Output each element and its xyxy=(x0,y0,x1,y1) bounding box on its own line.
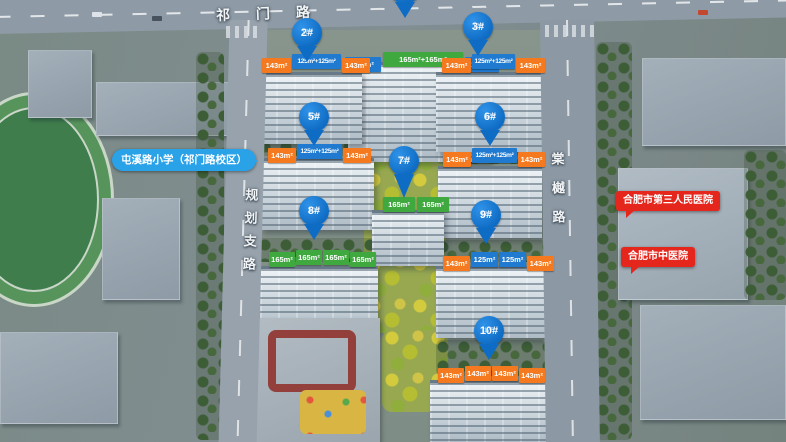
school-callout[interactable]: 屯溪路小学（祁门路校区） xyxy=(112,149,256,171)
unit-area-flag: 143m² xyxy=(443,152,471,167)
residential-tower-10 xyxy=(430,380,548,442)
hospital-building-block xyxy=(618,168,748,300)
car xyxy=(698,10,708,15)
unit-area-flag: 165m² xyxy=(296,250,322,265)
unit-area-flag: 165m² xyxy=(383,197,415,212)
car xyxy=(152,16,162,21)
callout-pointer xyxy=(631,266,640,274)
hospital-building-block xyxy=(640,305,786,420)
unit-area-flag: 125m² xyxy=(471,252,498,267)
pin-head: 8# 10F xyxy=(299,196,329,226)
pin-tail xyxy=(304,224,324,240)
unit-area-flag: 143m² xyxy=(492,366,518,381)
pin-tail xyxy=(480,130,500,146)
unit-area-flag: 143m² xyxy=(343,148,371,163)
unit-area-flag: 165m² xyxy=(323,250,349,265)
pin-tail xyxy=(476,228,496,244)
unit-area-flag: 143m² xyxy=(442,58,471,73)
pin-head: 5# 17F xyxy=(299,102,329,132)
school-building-block xyxy=(28,50,92,118)
callout-pointer xyxy=(250,156,263,166)
unit-area-flag: 125m² xyxy=(499,252,526,267)
building-floors: 17F xyxy=(302,30,312,37)
building-floors: 17F xyxy=(485,114,495,121)
building-floors: 17F xyxy=(309,114,319,121)
unit-area-flag: 143m² xyxy=(268,148,296,163)
unit-area-flag: 143m² xyxy=(262,58,291,73)
pin-tail xyxy=(479,344,499,360)
residential-tower-7 xyxy=(372,210,444,266)
road-label-left: 规划支路 xyxy=(238,188,260,281)
hospital-callout-2-label: 合肥市中医院 xyxy=(628,251,688,262)
building-floors: 17F xyxy=(473,24,483,31)
pin-tail xyxy=(395,2,415,18)
unit-area-flag: 143m² xyxy=(342,58,370,73)
building-floors: 12F xyxy=(399,158,409,165)
crosswalk xyxy=(545,25,597,37)
unit-area-flag: 165m² xyxy=(417,197,449,212)
tree-patch xyxy=(744,150,786,300)
school-callout-label: 屯溪路小学（祁门路校区） xyxy=(121,154,247,166)
pin-head: 9# 17F xyxy=(471,200,501,230)
unit-area-flag: 165m² xyxy=(269,252,295,267)
unit-area-flag: 143m² xyxy=(516,58,545,73)
unit-area-flag: 143m² xyxy=(443,256,470,271)
pin-head: 6# 17F xyxy=(475,102,505,132)
pin-head: 10# 17F xyxy=(474,316,504,346)
crosswalk xyxy=(226,26,262,38)
top-road xyxy=(0,0,786,34)
pin-head: 2# 17F xyxy=(292,18,322,48)
school-building-block xyxy=(102,198,180,300)
playground xyxy=(300,390,366,434)
unit-area-flag: 143m² xyxy=(438,368,464,383)
unit-area-flag: 125m²+125m² xyxy=(472,54,515,69)
callout-pointer xyxy=(626,210,635,218)
pin-tail xyxy=(394,174,414,198)
unit-area-flag: 125m²+125m² xyxy=(297,144,342,159)
kindergarten-red-roof xyxy=(268,330,356,392)
road-label-right: 棠樾路 xyxy=(547,152,568,239)
building-floors: 17F xyxy=(484,328,494,335)
unit-area-flag: 125m²+125m² xyxy=(472,148,517,163)
unit-area-flag: 165m² xyxy=(350,252,376,267)
pin-tail xyxy=(297,46,317,62)
unit-area-flag: 143m² xyxy=(518,152,545,167)
unit-area-flag: 143m² xyxy=(527,256,554,271)
pin-tail xyxy=(304,130,324,146)
building-floors: 10F xyxy=(309,208,319,215)
building-floors: 17F xyxy=(481,212,491,219)
hospital-callout-1-label: 合肥市第三人民医院 xyxy=(623,195,713,206)
school-building-block xyxy=(0,332,118,424)
road-label-top: 祁门路 xyxy=(216,1,337,25)
pin-tail xyxy=(468,40,488,56)
site-plan-map: 祁门路 规划支路 棠樾路 125m² 165m²+165m² 125m² 143… xyxy=(0,0,786,442)
pin-head: 7# 12F xyxy=(389,146,419,176)
lane-marking xyxy=(0,0,786,18)
hospital-callout-2[interactable]: 合肥市中医院 xyxy=(621,247,695,267)
pin-head: 3# 17F xyxy=(463,12,493,42)
hospital-callout-1[interactable]: 合肥市第三人民医院 xyxy=(616,191,720,211)
unit-area-flag: 143m² xyxy=(465,366,491,381)
car xyxy=(92,12,102,17)
unit-area-flag: 143m² xyxy=(519,368,545,383)
hospital-building-block xyxy=(642,58,786,146)
